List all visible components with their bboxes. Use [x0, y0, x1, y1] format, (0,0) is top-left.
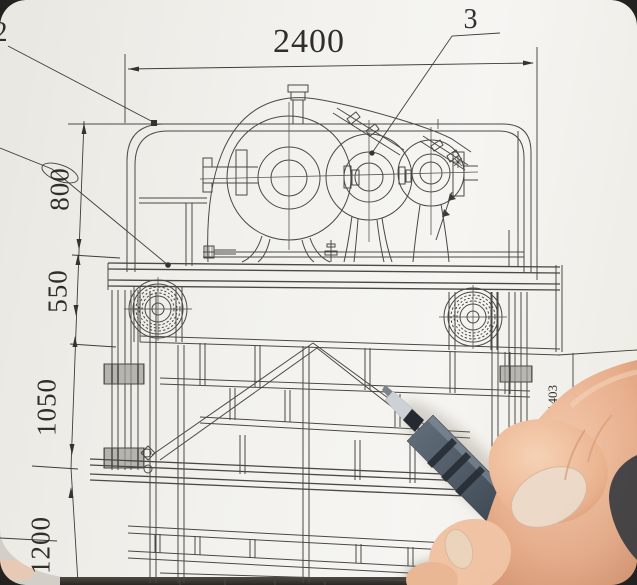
- hand-and-pen-overlay: [0, 0, 637, 585]
- photo-frame: 2400 800 550 1050 1200 1403 3 2: [0, 0, 637, 585]
